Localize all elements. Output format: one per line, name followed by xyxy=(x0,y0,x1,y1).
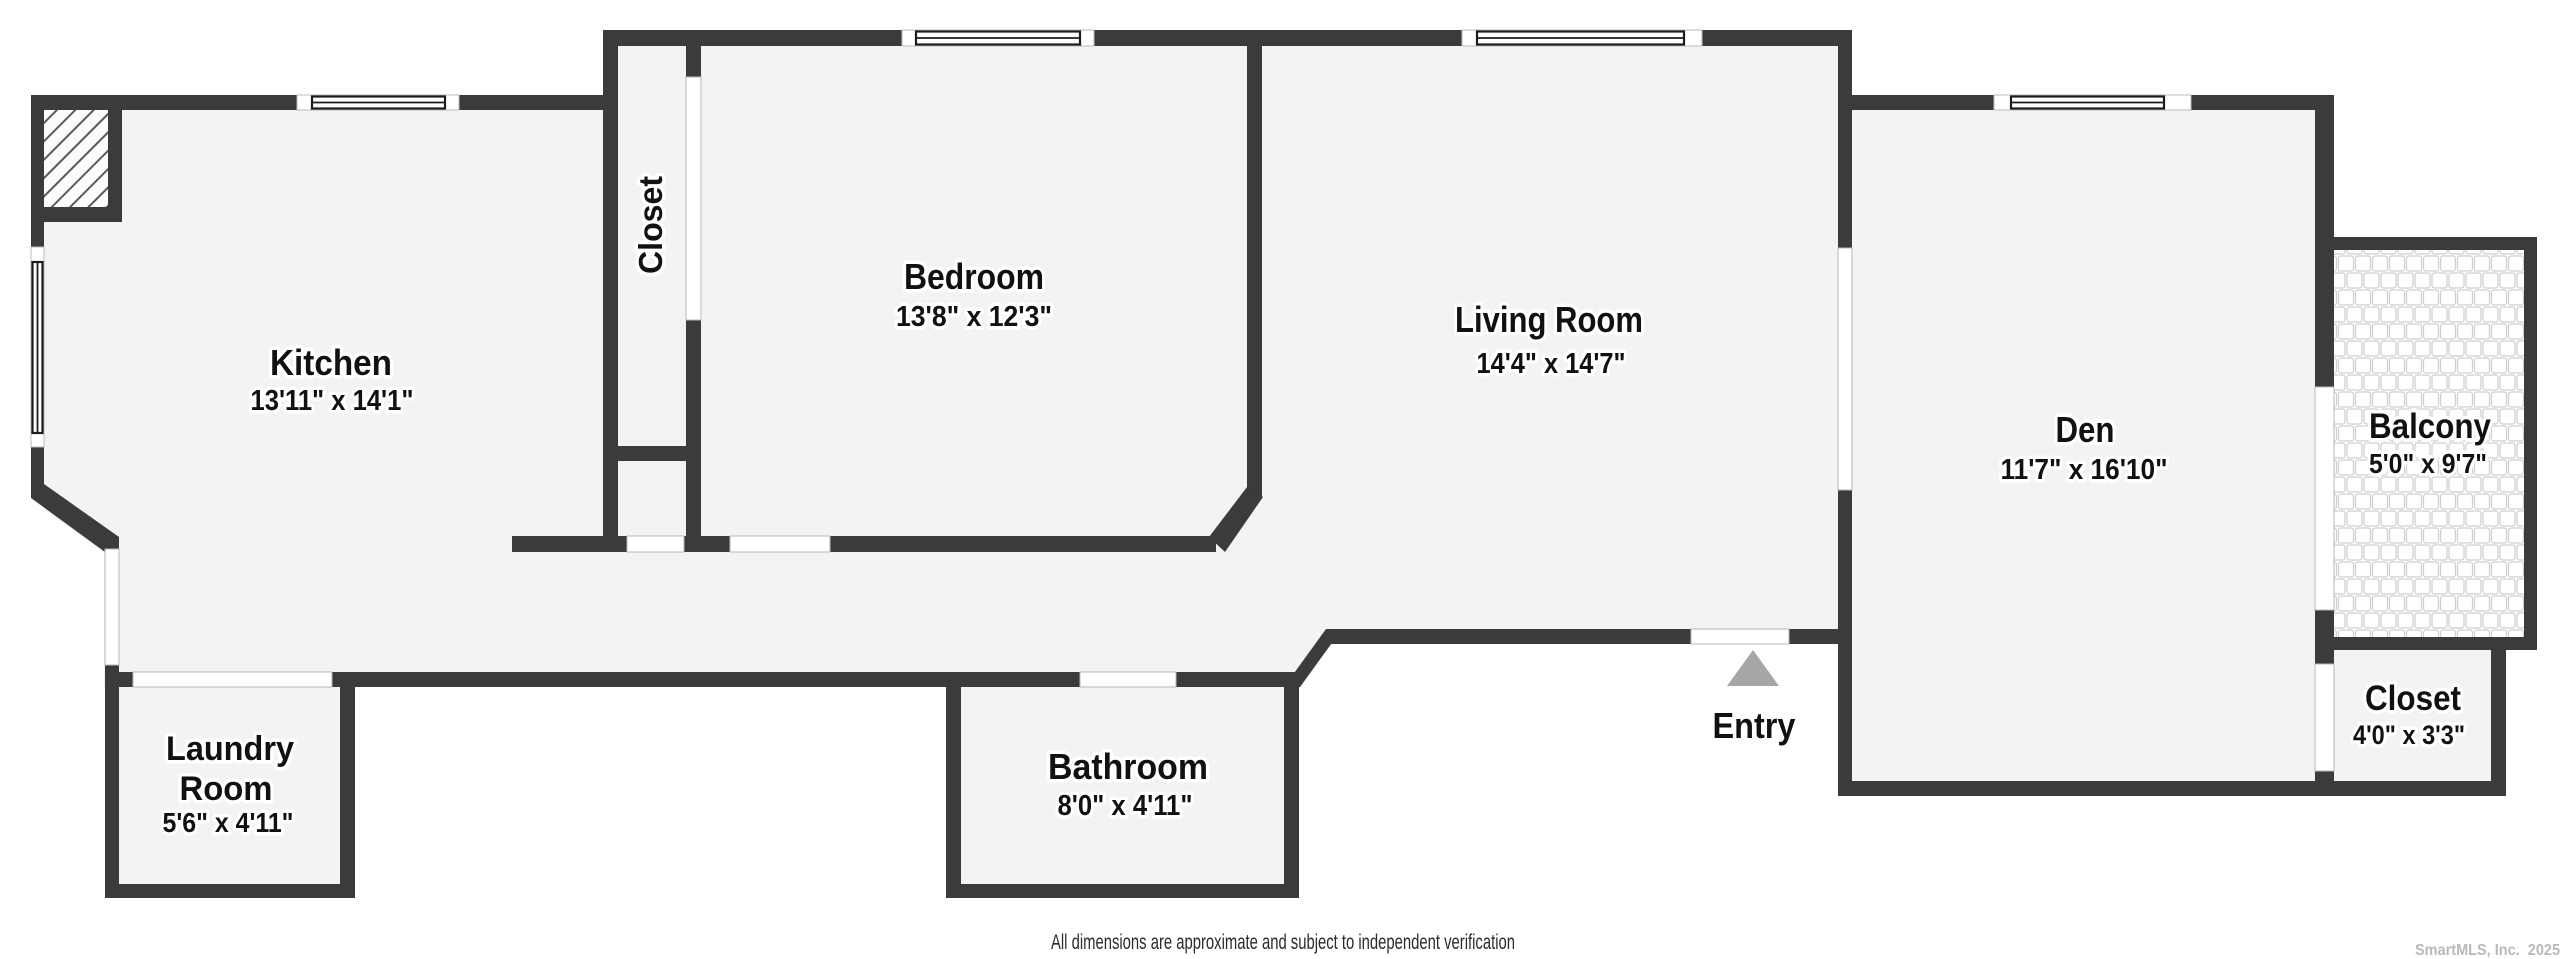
svg-text:5'0" x 9'7": 5'0" x 9'7" xyxy=(2369,448,2487,479)
svg-text:Bathroom: Bathroom xyxy=(1048,746,1208,787)
svg-text:Room: Room xyxy=(180,770,273,808)
svg-text:8'0" x 4'11": 8'0" x 4'11" xyxy=(1058,790,1193,822)
svg-text:Balcony: Balcony xyxy=(2369,407,2491,446)
svg-text:Entry: Entry xyxy=(1713,705,1796,746)
svg-text:Bedroom: Bedroom xyxy=(904,256,1044,297)
svg-text:Laundry: Laundry xyxy=(166,730,294,768)
svg-text:All dimensions are approximate: All dimensions are approximate and subje… xyxy=(1051,931,1515,954)
svg-text:Den: Den xyxy=(2056,409,2115,450)
svg-text:5'6" x 4'11": 5'6" x 4'11" xyxy=(163,807,294,838)
svg-text:Closet: Closet xyxy=(632,176,669,274)
svg-text:13'11" x 14'1": 13'11" x 14'1" xyxy=(251,385,414,417)
svg-text:Kitchen: Kitchen xyxy=(270,342,392,383)
svg-text:Living Room: Living Room xyxy=(1455,299,1643,340)
svg-text:11'7" x 16'10": 11'7" x 16'10" xyxy=(2001,454,2168,486)
svg-text:SmartMLS, Inc. 2025: SmartMLS, Inc. 2025 xyxy=(2415,942,2560,959)
svg-text:14'4" x 14'7": 14'4" x 14'7" xyxy=(1477,348,1626,380)
svg-text:Closet: Closet xyxy=(2365,679,2461,718)
svg-text:13'8" x 12'3": 13'8" x 12'3" xyxy=(896,301,1052,333)
svg-text:4'0" x 3'3": 4'0" x 3'3" xyxy=(2353,720,2465,750)
